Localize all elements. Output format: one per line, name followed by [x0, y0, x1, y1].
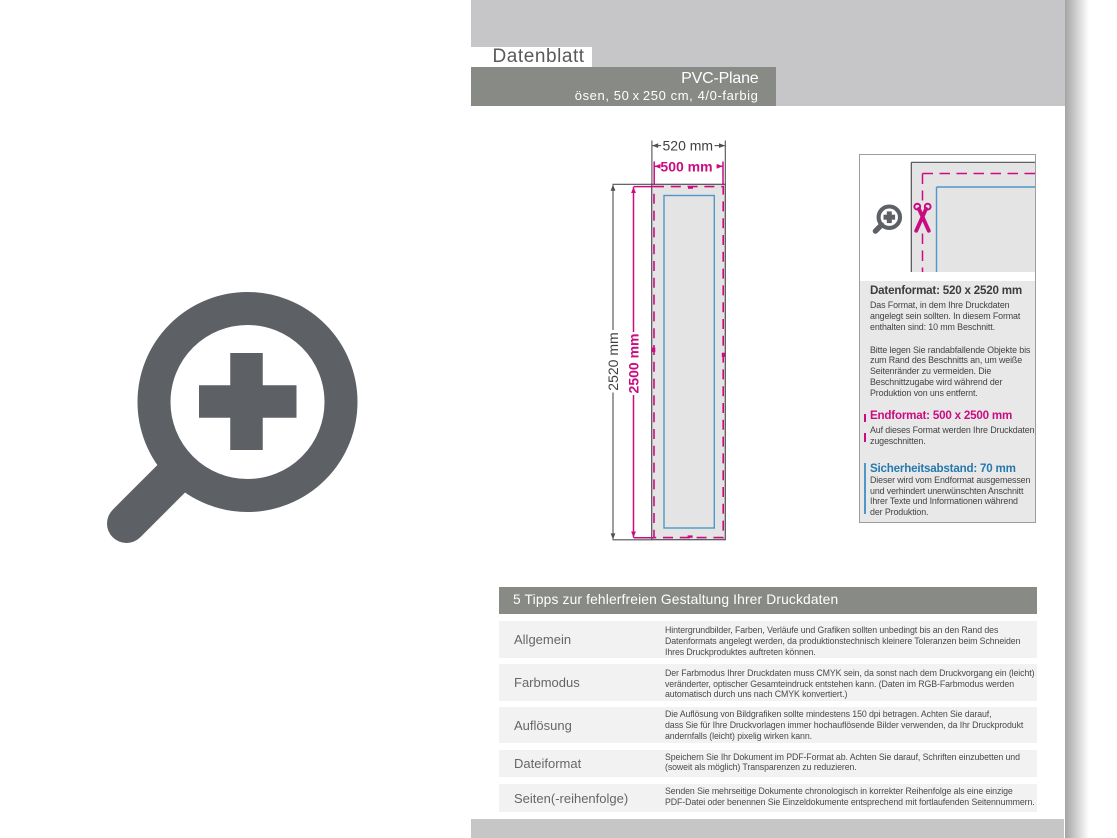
svg-text:500 mm: 500 mm — [660, 158, 712, 174]
svg-text:520 mm: 520 mm — [663, 138, 714, 154]
svg-text:2500 mm: 2500 mm — [626, 334, 642, 394]
svg-text:2520 mm: 2520 mm — [605, 332, 621, 390]
